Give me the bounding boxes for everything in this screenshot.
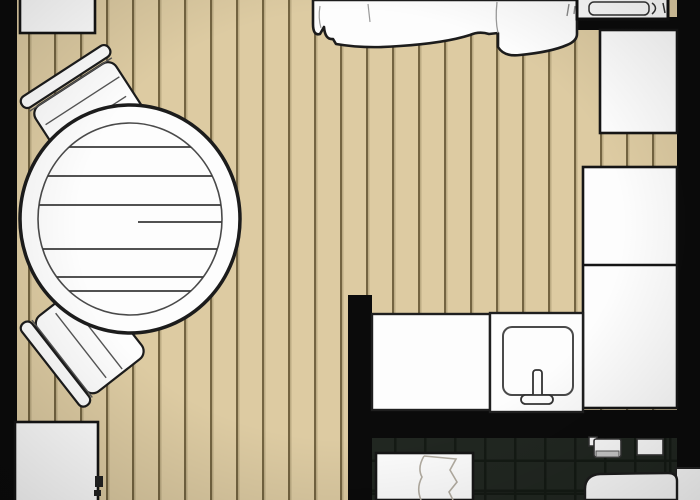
cabinet-bottom-left <box>15 422 103 500</box>
closet-right-units <box>583 167 677 408</box>
pillow-nook <box>577 0 668 19</box>
bathroom-shelf <box>637 439 663 455</box>
round-dining-table <box>20 105 240 333</box>
toilet <box>585 468 700 500</box>
furniture-layer <box>0 0 700 500</box>
toilet-paper-holder <box>589 437 621 457</box>
sink-basin-with-faucet <box>503 327 573 404</box>
bed-with-duvet <box>313 0 577 55</box>
wardrobe-right-top <box>600 30 677 133</box>
kitchen-counter <box>372 314 490 410</box>
shelf-top-left <box>20 0 95 33</box>
shower-door-panel <box>376 453 473 500</box>
floor-plan <box>0 0 700 500</box>
